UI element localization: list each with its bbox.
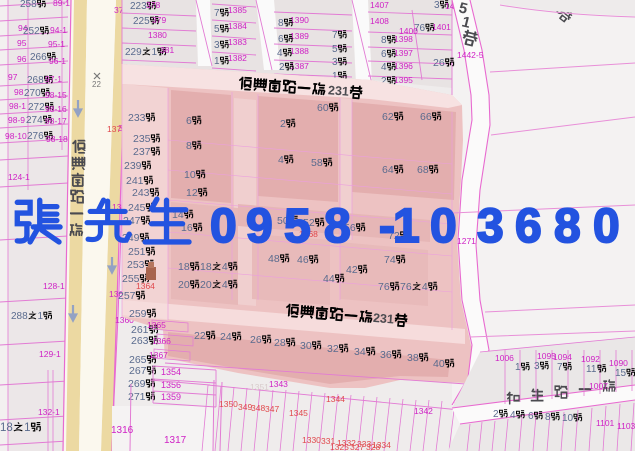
svg-text:7: 7	[332, 30, 338, 41]
svg-text:95-1: 95-1	[48, 39, 65, 49]
svg-text:1092: 1092	[581, 354, 600, 364]
svg-text:1: 1	[214, 56, 220, 67]
svg-text:97: 97	[8, 72, 18, 82]
svg-text:26: 26	[433, 57, 445, 69]
svg-text:40: 40	[433, 358, 445, 370]
svg-text:263: 263	[131, 335, 149, 347]
svg-text:1343: 1343	[269, 379, 288, 389]
svg-text:89-1: 89-1	[53, 0, 70, 8]
svg-text:22: 22	[194, 330, 206, 342]
svg-text:225: 225	[133, 16, 150, 27]
svg-text:1398: 1398	[394, 34, 413, 44]
svg-text:243: 243	[132, 187, 150, 199]
svg-text:1317: 1317	[164, 435, 187, 446]
svg-text:1442-5: 1442-5	[457, 50, 484, 60]
svg-text:4: 4	[278, 154, 284, 166]
svg-text:6: 6	[186, 115, 192, 127]
svg-text:4: 4	[277, 48, 283, 59]
svg-text:1389: 1389	[290, 31, 309, 41]
svg-text:1401: 1401	[432, 22, 451, 32]
svg-text:288: 288	[11, 311, 28, 322]
svg-text:94-1: 94-1	[50, 25, 67, 35]
svg-text:10: 10	[184, 169, 196, 181]
svg-text:1271: 1271	[457, 236, 476, 246]
svg-text:1380: 1380	[148, 30, 167, 40]
svg-text:129-1: 129-1	[39, 349, 61, 359]
svg-text:1094: 1094	[553, 352, 572, 362]
svg-text:245: 245	[128, 202, 146, 214]
svg-text:42: 42	[346, 264, 358, 276]
svg-text:266: 266	[30, 52, 47, 63]
svg-text:267: 267	[129, 365, 147, 377]
svg-text:124-1: 124-1	[8, 172, 30, 182]
svg-text:1408: 1408	[370, 16, 389, 26]
svg-text:1395: 1395	[394, 75, 413, 85]
svg-text:252: 252	[23, 26, 40, 37]
svg-text:251: 251	[128, 246, 146, 258]
svg-text:1007: 1007	[589, 381, 608, 391]
svg-text:4: 4	[381, 62, 387, 73]
svg-text:3: 3	[534, 361, 540, 372]
svg-text:1: 1	[515, 362, 521, 373]
svg-text:1365: 1365	[147, 320, 166, 330]
svg-text:1316: 1316	[111, 425, 134, 436]
svg-text:128-1: 128-1	[43, 281, 65, 291]
svg-text:328: 328	[366, 442, 380, 451]
svg-text:98-10: 98-10	[5, 131, 27, 141]
svg-text:98-15: 98-15	[45, 90, 67, 100]
svg-text:11: 11	[586, 364, 597, 375]
svg-text:1350: 1350	[219, 399, 238, 409]
svg-text:241: 241	[126, 175, 144, 187]
svg-text:48: 48	[268, 253, 280, 265]
svg-text:1396: 1396	[394, 61, 413, 71]
svg-text:4: 4	[222, 279, 228, 291]
svg-text:34: 34	[354, 346, 366, 358]
svg-text:2: 2	[493, 409, 499, 420]
svg-text:1: 1	[24, 422, 30, 434]
svg-text:26: 26	[250, 334, 262, 346]
svg-text:18: 18	[200, 261, 212, 273]
svg-text:18: 18	[178, 261, 190, 273]
svg-text:98-18: 98-18	[46, 134, 68, 144]
svg-text:1364: 1364	[136, 281, 155, 291]
svg-text:1090: 1090	[609, 358, 628, 368]
svg-text:1006: 1006	[495, 353, 514, 363]
svg-text:1344: 1344	[326, 394, 345, 404]
svg-text:4: 4	[222, 261, 228, 273]
svg-text:62: 62	[382, 111, 394, 123]
svg-text:239: 239	[124, 160, 142, 172]
svg-text:15: 15	[615, 368, 627, 379]
svg-text:378: 378	[146, 0, 160, 10]
svg-text:258: 258	[20, 0, 37, 10]
svg-text:44: 44	[323, 273, 335, 285]
svg-text:223: 223	[130, 1, 147, 12]
svg-text:231: 231	[372, 311, 394, 327]
svg-text:1: 1	[38, 311, 44, 322]
svg-text:7: 7	[557, 362, 563, 373]
svg-text:76: 76	[400, 281, 412, 293]
svg-text:98-16: 98-16	[45, 104, 67, 114]
svg-text:1351: 1351	[250, 382, 269, 392]
svg-text:12: 12	[186, 187, 198, 199]
svg-text:30: 30	[300, 340, 312, 352]
svg-text:274: 274	[26, 115, 43, 126]
svg-text:5: 5	[214, 24, 220, 35]
svg-text:347: 347	[265, 404, 279, 414]
svg-text:3: 3	[214, 40, 220, 51]
svg-text:3: 3	[332, 57, 338, 68]
svg-text:6: 6	[278, 34, 284, 45]
svg-text:259: 259	[129, 308, 147, 320]
svg-text:327: 327	[350, 442, 364, 451]
svg-text:1: 1	[152, 47, 158, 58]
svg-text:96: 96	[17, 54, 27, 64]
svg-text:8: 8	[545, 412, 551, 423]
svg-text:96-1: 96-1	[49, 56, 66, 66]
svg-text:1325: 1325	[330, 442, 349, 451]
svg-text:28: 28	[274, 337, 286, 349]
svg-text:97-1: 97-1	[45, 74, 62, 84]
svg-text:270: 270	[24, 88, 41, 99]
svg-text:8: 8	[186, 140, 192, 152]
svg-text:2: 2	[279, 62, 285, 73]
svg-text:8: 8	[278, 18, 284, 29]
svg-text:1330: 1330	[302, 435, 321, 445]
svg-text:24: 24	[220, 331, 232, 343]
svg-text:6: 6	[381, 49, 387, 60]
svg-text:20: 20	[200, 279, 212, 291]
svg-text:60: 60	[317, 102, 329, 114]
svg-text:98-9: 98-9	[8, 115, 25, 125]
svg-text:1383: 1383	[228, 37, 247, 47]
svg-text:32: 32	[327, 343, 339, 355]
svg-text:257: 257	[118, 290, 136, 302]
svg-text:276: 276	[27, 131, 44, 142]
svg-text:36: 36	[380, 349, 392, 361]
svg-text:381: 381	[160, 45, 174, 55]
svg-text:18: 18	[0, 422, 13, 434]
svg-text:1385: 1385	[228, 5, 247, 15]
svg-text:22: 22	[92, 80, 101, 89]
svg-text:272: 272	[28, 102, 45, 113]
svg-text:0958-103680: 0958-103680	[210, 200, 620, 253]
svg-text:68: 68	[417, 164, 429, 176]
svg-text:95: 95	[17, 38, 27, 48]
svg-text:1103: 1103	[617, 421, 635, 431]
svg-text:2: 2	[280, 118, 286, 130]
svg-text:1366: 1366	[152, 336, 171, 346]
svg-text:229: 229	[125, 47, 142, 58]
svg-text:268: 268	[27, 75, 44, 86]
svg-text:1101: 1101	[596, 418, 615, 428]
svg-text:74: 74	[384, 254, 396, 266]
svg-text:132-1: 132-1	[38, 407, 60, 417]
svg-text:1342: 1342	[414, 406, 433, 416]
svg-text:237: 237	[133, 146, 151, 158]
svg-text:98-17: 98-17	[45, 116, 67, 126]
svg-text:3: 3	[434, 0, 440, 11]
svg-text:76: 76	[378, 281, 390, 293]
svg-text:8: 8	[381, 35, 387, 46]
svg-text:1345: 1345	[289, 408, 308, 418]
svg-text:6: 6	[528, 411, 534, 422]
svg-text:20: 20	[178, 279, 190, 291]
svg-text:7: 7	[214, 8, 220, 19]
svg-text:98: 98	[14, 87, 24, 97]
svg-text:64: 64	[382, 164, 394, 176]
svg-text:4: 4	[510, 410, 516, 421]
svg-text:5: 5	[332, 44, 338, 55]
svg-text:235: 235	[133, 133, 151, 145]
svg-text:4: 4	[422, 281, 428, 293]
svg-text:253: 253	[127, 259, 145, 271]
svg-text:98-1: 98-1	[9, 101, 26, 111]
svg-text:10: 10	[562, 413, 574, 424]
svg-text:233: 233	[128, 112, 146, 124]
svg-text:1382: 1382	[228, 53, 247, 63]
svg-text:1390: 1390	[290, 15, 309, 25]
svg-text:46: 46	[297, 254, 309, 266]
svg-text:348: 348	[251, 403, 265, 413]
svg-text:379: 379	[152, 15, 166, 25]
svg-text:1388: 1388	[290, 46, 309, 56]
svg-text:38: 38	[407, 352, 419, 364]
svg-text:66: 66	[420, 111, 432, 123]
svg-text:1384: 1384	[228, 21, 247, 31]
svg-text:1407: 1407	[370, 0, 389, 10]
svg-text:231: 231	[328, 83, 350, 98]
svg-text:1397: 1397	[394, 48, 413, 58]
svg-text:58: 58	[311, 157, 323, 169]
